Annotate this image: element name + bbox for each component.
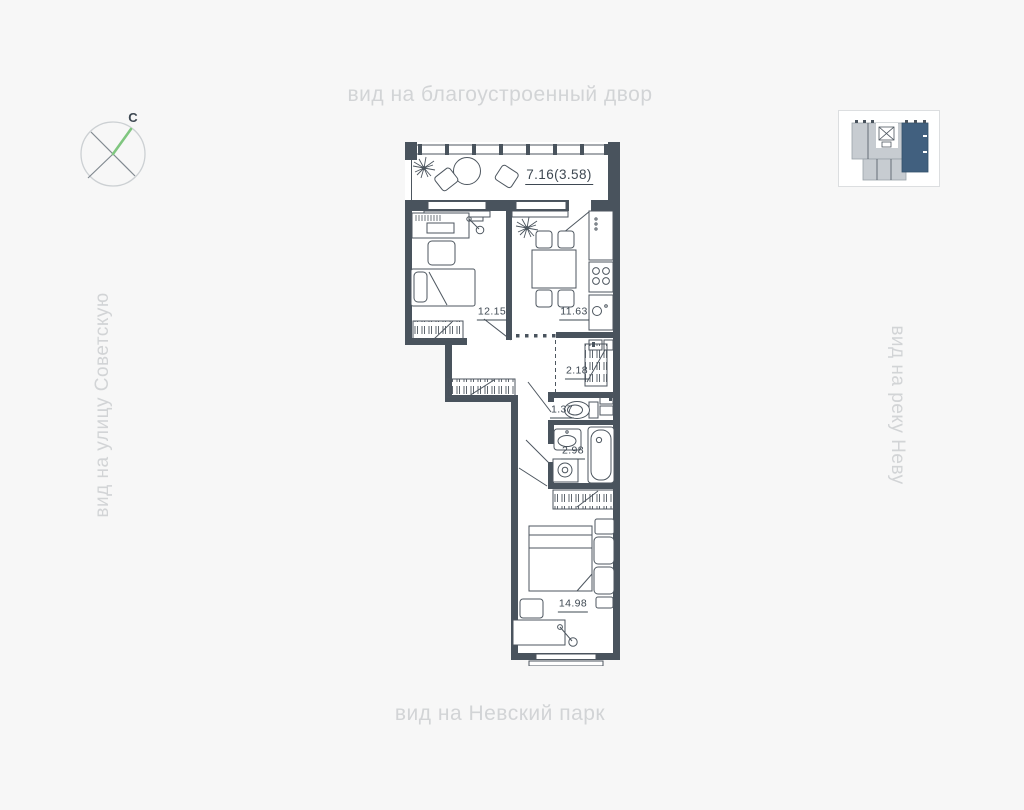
headboard xyxy=(529,526,592,535)
room-label-wc: 1.37 xyxy=(550,404,574,419)
side-table xyxy=(596,597,613,608)
wardrobe-bedroom1 xyxy=(413,321,463,340)
north-needle xyxy=(113,129,131,154)
room-label-kitchen: 11.63 xyxy=(559,306,589,321)
tall-cabinet xyxy=(589,211,613,260)
kitchen-chair-2 xyxy=(558,231,574,248)
view-label-bottom: вид на Невский парк xyxy=(395,702,605,726)
wardrobe-hall xyxy=(447,379,515,397)
floor-plan xyxy=(400,138,626,666)
room-label-bedroom-1: 12.15 xyxy=(477,306,507,321)
desk-1 xyxy=(412,213,469,238)
highlighted-apartment xyxy=(902,123,928,172)
kitchen-chair-4 xyxy=(558,290,574,307)
view-label-right: вид на реку Неву xyxy=(886,325,908,484)
nightstand-3 xyxy=(594,567,614,594)
room-label-bedroom-2: 14.98 xyxy=(558,598,588,613)
view-label-top: вид на благоустроенный двор xyxy=(347,83,652,107)
nightstand-1 xyxy=(595,519,614,534)
compass-icon: С xyxy=(78,104,154,190)
stove xyxy=(589,262,613,292)
pillow-1 xyxy=(414,272,427,302)
room-label-balcony: 7.16(3.58) xyxy=(525,167,593,185)
compass-cross-line-2 xyxy=(88,154,113,178)
room-label-wardrobe: 2.18 xyxy=(565,365,589,380)
toilet-tank xyxy=(589,402,598,418)
floorplan-page: вид на благоустроенный двор вид на Невск… xyxy=(0,0,1024,810)
chair-1 xyxy=(428,241,455,265)
building-thumbnail[interactable] xyxy=(838,110,940,187)
dining-table xyxy=(532,250,576,288)
north-label: С xyxy=(128,110,138,125)
chair-2 xyxy=(520,599,543,618)
washing-machine xyxy=(553,459,578,482)
wardrobe-bedroom2 xyxy=(553,490,616,509)
building-floorplate xyxy=(852,120,928,180)
building-thumbnail-plan xyxy=(839,111,939,186)
kitchen-chair-3 xyxy=(536,290,552,307)
double-bed xyxy=(529,535,592,591)
desk-2 xyxy=(513,620,565,645)
room-label-bathroom: 2.98 xyxy=(561,445,585,460)
nightstand-2 xyxy=(594,537,614,564)
kitchen-chair-1 xyxy=(536,231,552,248)
view-label-left: вид на улицу Советскую xyxy=(92,292,114,517)
